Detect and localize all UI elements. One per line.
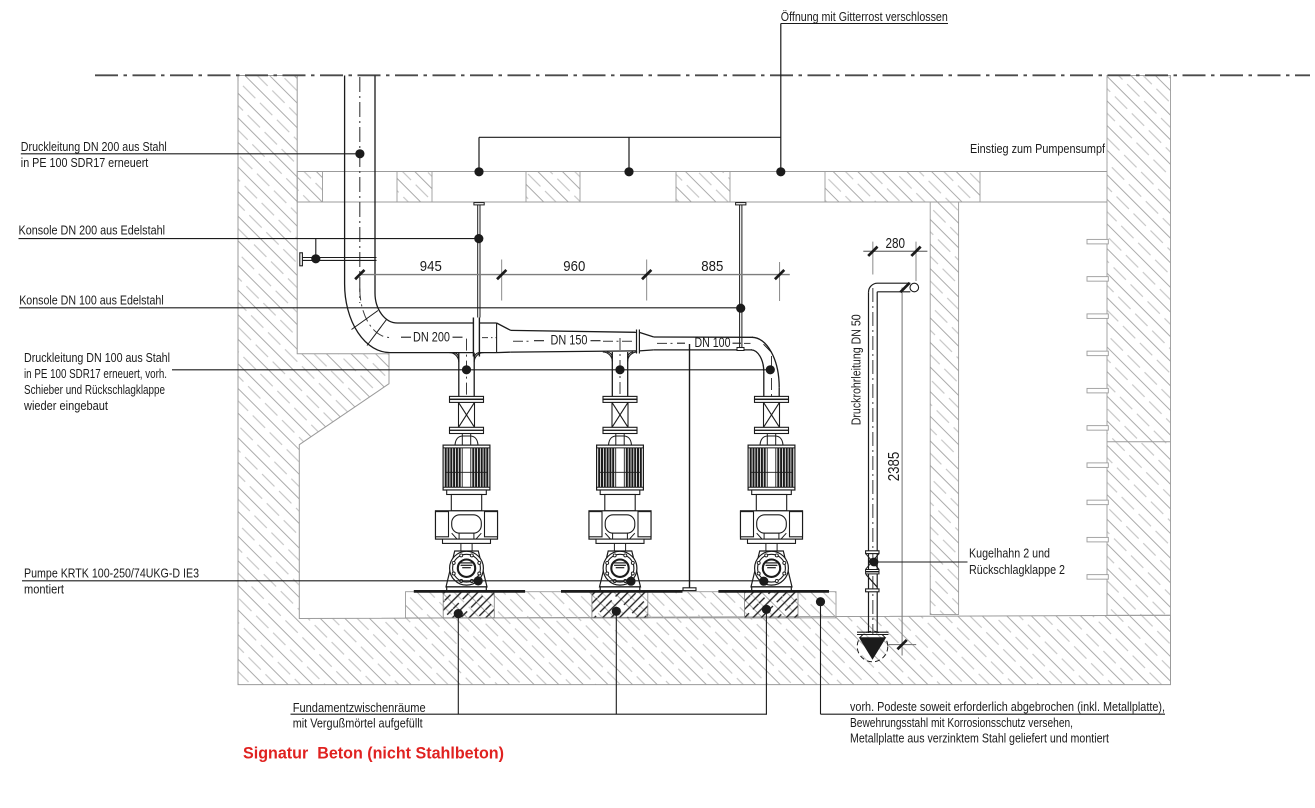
- svg-text:280: 280: [886, 235, 906, 252]
- svg-text:in PE 100 SDR17 erneuert: in PE 100 SDR17 erneuert: [21, 155, 149, 170]
- svg-text:in PE 100 SDR17 erneuert, vorh: in PE 100 SDR17 erneuert, vorh.: [24, 366, 167, 381]
- svg-text:Metallplatte aus verzinktem St: Metallplatte aus verzinktem Stahl gelief…: [850, 730, 1109, 745]
- svg-text:Einstieg zum Pumpensumpf: Einstieg zum Pumpensumpf: [970, 141, 1105, 156]
- svg-text:DN 100: DN 100: [695, 335, 731, 350]
- svg-text:Fundamentzwischenräume: Fundamentzwischenräume: [293, 700, 426, 715]
- svg-text:DN 150: DN 150: [551, 333, 588, 348]
- svg-text:montiert: montiert: [24, 581, 64, 596]
- svg-text:Pumpe KRTK 100-250/74UKG-D IE3: Pumpe KRTK 100-250/74UKG-D IE3: [24, 565, 199, 580]
- svg-text:vorh. Podeste soweit erforderl: vorh. Podeste soweit erforderlich abgebr…: [850, 699, 1165, 714]
- svg-text:Druckrohrleitung DN 50: Druckrohrleitung DN 50: [849, 314, 864, 425]
- svg-text:Konsole DN 100 aus Edelstahl: Konsole DN 100 aus Edelstahl: [19, 292, 164, 307]
- svg-text:Konsole DN 200 aus Edelstahl: Konsole DN 200 aus Edelstahl: [19, 222, 166, 237]
- svg-text:Druckleitung DN 100 aus Stahl: Druckleitung DN 100 aus Stahl: [24, 350, 170, 365]
- svg-text:Öffnung mit Gitterrost verschl: Öffnung mit Gitterrost verschlossen: [781, 9, 948, 24]
- svg-text:960: 960: [563, 258, 585, 275]
- svg-text:2385: 2385: [886, 452, 903, 482]
- svg-text:Kugelhahn 2 und: Kugelhahn 2 und: [969, 545, 1050, 560]
- svg-text:Rückschlagklappe 2: Rückschlagklappe 2: [969, 562, 1065, 577]
- svg-text:Bewehrungsstahl mit Korrosions: Bewehrungsstahl mit Korrosionsschutz ver…: [850, 715, 1073, 730]
- svg-text:Signatur Beton (nicht Stahlbe: Signatur Beton (nicht Stahlbeton): [243, 744, 504, 762]
- svg-text:mit Vergußmörtel aufgefüllt: mit Vergußmörtel aufgefüllt: [293, 715, 423, 730]
- svg-text:Schieber und Rückschlagklappe: Schieber und Rückschlagklappe: [24, 382, 165, 397]
- svg-text:wieder eingebaut: wieder eingebaut: [23, 398, 108, 413]
- svg-text:945: 945: [420, 258, 442, 275]
- svg-text:Druckleitung DN 200 aus Stahl: Druckleitung DN 200 aus Stahl: [21, 139, 167, 154]
- svg-text:885: 885: [701, 258, 723, 275]
- svg-text:DN 200: DN 200: [413, 329, 450, 344]
